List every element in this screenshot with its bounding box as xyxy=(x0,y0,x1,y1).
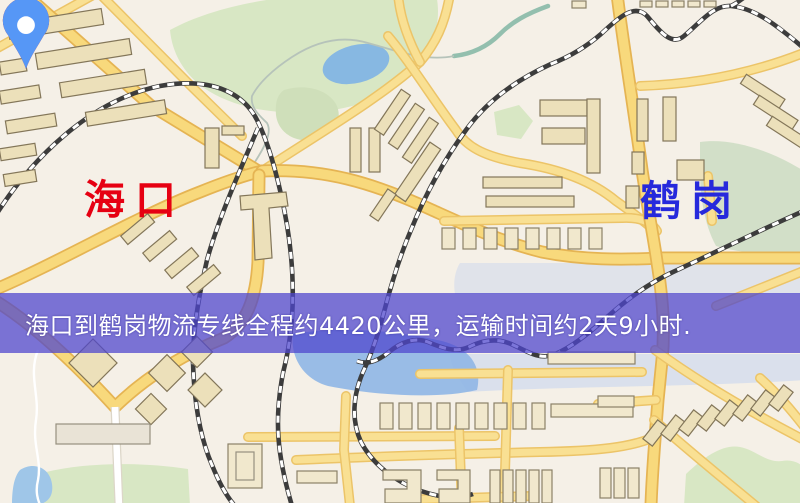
route-info-text: 海口到鹤岗物流专线全程约4420公里，运输时间约2天9小时. xyxy=(0,306,691,341)
destination-city-label: 鹤岗 xyxy=(640,181,742,222)
route-info-banner: 海口到鹤岗物流专线全程约4420公里，运输时间约2天9小时. xyxy=(0,293,800,353)
map-background xyxy=(0,0,800,503)
blue-map-pin-destination[interactable] xyxy=(0,0,52,71)
origin-city-label: 海口 xyxy=(84,180,186,221)
map-screenshot: 海口 鹤岗 海口到鹤岗物流专线全程约4420公里，运输时间约2天9小时. xyxy=(0,0,800,503)
